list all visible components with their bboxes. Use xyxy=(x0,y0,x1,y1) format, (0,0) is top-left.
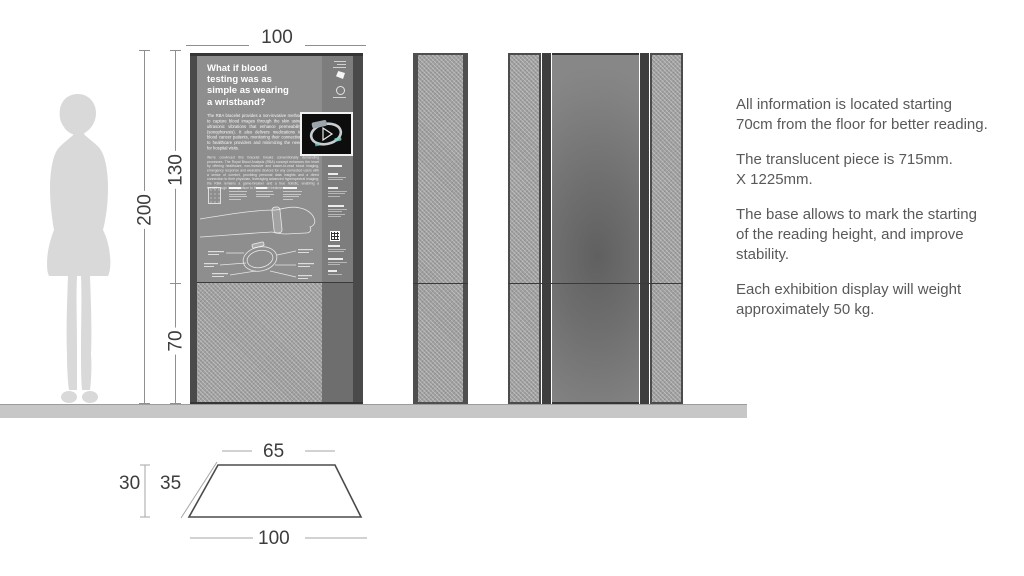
silhouette-body xyxy=(47,133,110,276)
bracelet-detail-outer xyxy=(241,244,279,275)
headline-line: What if blood xyxy=(207,63,311,74)
panel-left-edge xyxy=(190,53,197,404)
panel-body-paragraph: We're convinced this bracelet breaks con… xyxy=(207,156,319,191)
human-scale-silhouette xyxy=(44,92,114,405)
back-mesh-left xyxy=(508,53,541,404)
bracelet-detail-inner xyxy=(246,248,275,270)
qr-code xyxy=(330,231,340,241)
bracelet-on-wrist xyxy=(272,207,283,234)
badge-circle-icon xyxy=(336,86,345,95)
dim-base-height-label: 70 xyxy=(166,327,187,354)
plan-slant-label: 35 xyxy=(160,474,181,493)
plan-top-width-label: 65 xyxy=(263,442,284,461)
plan-depth-label: 30 xyxy=(119,474,140,493)
back-frame-bar-left xyxy=(542,53,551,404)
side-view-display xyxy=(413,53,468,404)
callout-line xyxy=(277,251,296,255)
silhouette-right-foot xyxy=(82,391,98,403)
translucent-center-panel xyxy=(552,53,639,404)
dim-tick xyxy=(139,403,150,404)
callout-label xyxy=(298,263,314,264)
spec-fine-print xyxy=(328,187,350,198)
panel-right-edge xyxy=(353,53,363,404)
silhouette-right-leg xyxy=(81,276,91,390)
legend-column xyxy=(229,187,249,201)
callout-line xyxy=(230,271,256,275)
video-thumbnail[interactable] xyxy=(300,112,353,156)
back-frame-bar-right xyxy=(640,53,649,404)
panel-base-strip xyxy=(322,283,353,402)
note-weight: Each exhibition display will weight appr… xyxy=(736,280,992,321)
note-translucent-line2: X 1225mm. xyxy=(736,170,992,190)
dim-tick xyxy=(170,50,181,51)
callout-label xyxy=(204,263,218,264)
dim-tick xyxy=(170,283,181,284)
side-seam-line xyxy=(413,283,468,284)
note-reading-height: All information is located starting 70cm… xyxy=(736,95,992,136)
exhibition-display-spec-sheet: 100 200 130 70 What if blood testing was… xyxy=(0,0,1024,576)
panel-base-mesh xyxy=(197,283,322,402)
callout-label xyxy=(298,252,309,253)
callout-label xyxy=(298,249,313,250)
legend-column xyxy=(256,187,276,199)
panel-headline: What if blood testing was as simple as w… xyxy=(207,63,311,108)
silhouette-head xyxy=(60,94,96,135)
headline-line: a wristband? xyxy=(207,97,311,108)
note-base: The base allows to mark the starting of … xyxy=(736,205,992,266)
callout-label xyxy=(212,276,224,277)
play-icon xyxy=(323,128,332,140)
panel-intro-paragraph: The RBA bracelet provides a non-invasive… xyxy=(207,113,302,151)
arm-outline-top xyxy=(200,210,276,219)
spec-fine-print xyxy=(328,270,350,276)
wristband-diagram xyxy=(200,201,322,281)
spec-fine-print xyxy=(328,205,350,219)
callout-label xyxy=(212,273,228,274)
note-translucent-size: The translucent piece is 715mm. X 1225mm… xyxy=(736,150,992,191)
dim-total-height-label: 200 xyxy=(135,191,156,229)
dim-tick xyxy=(139,50,150,51)
spec-fine-print xyxy=(328,245,350,254)
back-mesh-right xyxy=(650,53,683,404)
bracelet-clasp xyxy=(252,242,265,249)
front-view-display: What if blood testing was as simple as w… xyxy=(190,53,363,404)
back-seam-line xyxy=(508,283,683,284)
callout-label xyxy=(298,266,310,267)
plan-bottom-width-label: 100 xyxy=(258,529,290,548)
badge-caption-lines xyxy=(332,97,346,100)
panel-bottom-edge xyxy=(190,402,363,404)
legend-column xyxy=(283,187,305,201)
wristband-video-still xyxy=(302,114,351,154)
spec-fine-print xyxy=(328,258,350,267)
note-translucent-line1: The translucent piece is 715mm. xyxy=(736,150,992,170)
arm-outline-bottom xyxy=(200,232,272,237)
panel-seam-line xyxy=(197,282,353,283)
callout-label xyxy=(204,266,214,267)
panel-top-edge xyxy=(190,53,363,56)
callout-label xyxy=(298,275,312,276)
silhouette-left-foot xyxy=(61,391,77,403)
dim-upper-height-label: 130 xyxy=(166,151,187,189)
back-view-display xyxy=(508,53,683,404)
spec-fine-print xyxy=(328,165,350,169)
floor-bar xyxy=(0,404,747,418)
base-plan-view xyxy=(105,437,385,552)
dim-tick xyxy=(170,403,181,404)
headline-line: simple as wearing xyxy=(207,85,311,96)
base-trapezoid xyxy=(189,465,361,517)
spec-fine-print xyxy=(328,173,350,182)
silhouette-left-leg xyxy=(67,276,77,390)
callout-label xyxy=(208,251,224,252)
callout-label xyxy=(208,254,219,255)
side-mesh-panel xyxy=(418,55,463,402)
dim-width-label: 100 xyxy=(249,27,305,48)
specification-notes: All information is located starting 70cm… xyxy=(736,95,992,335)
strip-credit-lines xyxy=(330,61,346,70)
callout-label xyxy=(298,278,308,279)
callout-line xyxy=(220,263,246,265)
headline-line: testing was as xyxy=(207,74,311,85)
callout-line xyxy=(270,271,296,277)
